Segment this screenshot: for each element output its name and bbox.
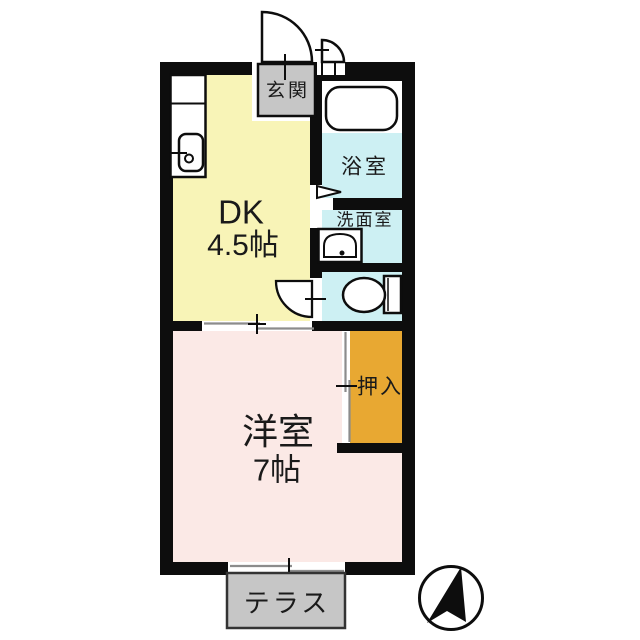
kitchen-sink-icon	[170, 75, 206, 177]
floor-plan: DK 4.5帖 玄関 浴室 洗面室 洋室 7帖 押入 テラス	[0, 0, 640, 640]
entrance-label: 玄関	[266, 82, 310, 101]
dk-size-label: 4.5帖	[207, 231, 279, 261]
bathtub-icon	[326, 87, 397, 130]
floor-plan-drawing	[0, 0, 640, 640]
washroom-label: 洗面室	[337, 212, 394, 229]
washbasin-icon	[319, 229, 362, 262]
western-room-label: 洋室	[242, 414, 314, 450]
western-size-label: 7帖	[253, 455, 301, 486]
bath-label: 浴室	[341, 157, 389, 178]
closet-label: 押入	[357, 377, 403, 398]
toilet-icon	[343, 276, 401, 313]
dk-label: DK	[218, 196, 264, 229]
terrace-label: テラス	[244, 590, 330, 616]
entrance-swing-door-icon	[262, 12, 312, 62]
north-arrow-icon	[420, 567, 483, 630]
